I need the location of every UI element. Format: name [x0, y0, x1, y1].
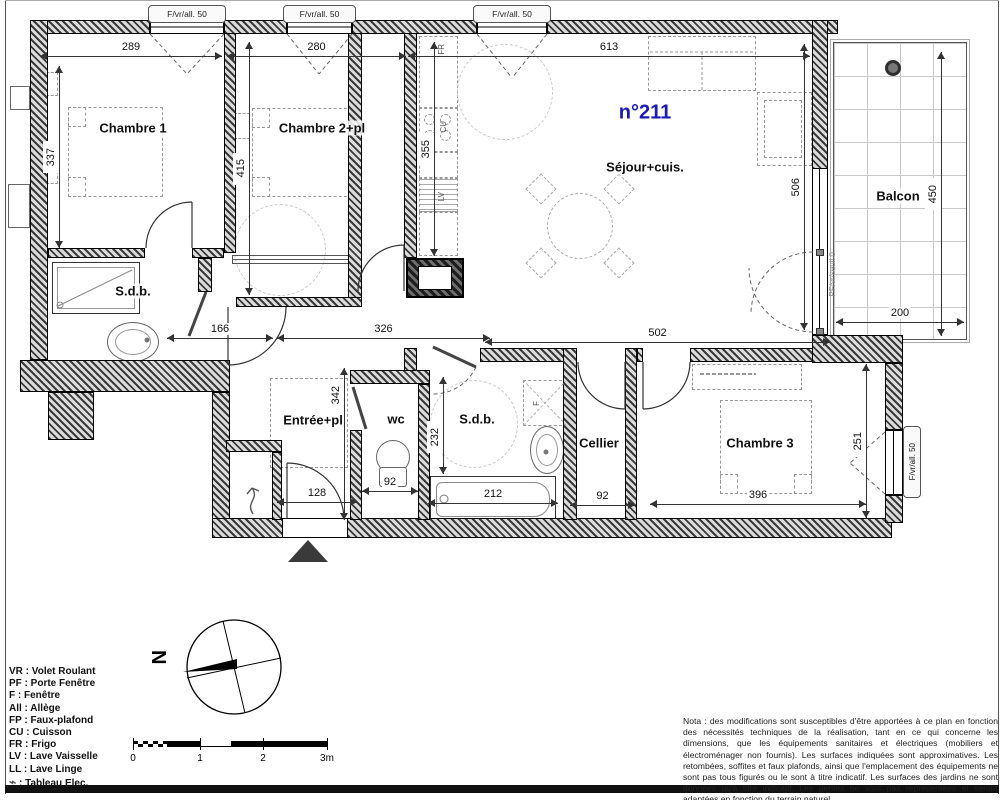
dim-arrow: [399, 52, 406, 60]
dimension-value: 289: [120, 41, 142, 53]
scale-tick: [133, 738, 134, 750]
dimension-line: [836, 322, 964, 323]
legend: VR : Volet RoulantPF : Porte FenêtreF : …: [9, 666, 98, 790]
dim-arrow: [800, 323, 808, 330]
legend-item: FR : Frigo: [9, 739, 98, 751]
scale-tick: [327, 738, 328, 750]
appliance-label-text: LV: [437, 192, 446, 201]
labels-layer: Chambre 1Chambre 2+plSéjour+cuis.BalconS…: [0, 0, 1003, 600]
dimension-line: [408, 56, 810, 57]
window-label-text: F/vr/all. 50: [492, 9, 532, 19]
dim-arrow: [570, 501, 577, 509]
dim-arrow: [937, 329, 945, 336]
dim-arrow: [245, 288, 253, 295]
dimension-line: [428, 503, 558, 504]
dim-arrow: [628, 501, 635, 509]
dimension-value: 506: [790, 178, 802, 196]
room-label-wc: wc: [385, 412, 406, 427]
dim-arrow: [439, 467, 447, 474]
window-label-text: F/vr/all. 50: [167, 9, 207, 19]
room-label-sdb-1: S.d.b.: [113, 284, 152, 299]
legend-item: FP : Faux-plafond: [9, 715, 98, 727]
scale-seg-solid: [231, 741, 263, 747]
dim-arrow: [245, 42, 253, 49]
dim-arrow: [430, 42, 438, 49]
dimension-line: [167, 338, 273, 339]
legend-item: CU : Cuisson: [9, 727, 98, 739]
dim-arrow: [485, 338, 492, 346]
dim-arrow: [227, 52, 234, 60]
dim-arrow: [340, 368, 348, 375]
plan-sheet: n°211 Chambre 1Chambre 2+plSéjour+cuis.B…: [0, 0, 1003, 800]
dim-arrow: [800, 44, 808, 51]
dimension-line: [227, 56, 406, 57]
scale-tick: [263, 738, 264, 750]
appliance-label-lave-vaisselle: LV: [433, 186, 449, 208]
dimension-value: 613: [598, 41, 620, 53]
legend-item: LL : Lave Linge: [9, 764, 98, 776]
dimension-value: 280: [305, 41, 327, 53]
dimension-value-wrap: 232: [427, 421, 443, 453]
dimension-line: [344, 368, 345, 520]
dimension-line: [40, 56, 222, 57]
legend-item: All : Allège: [9, 703, 98, 715]
dimension-line: [59, 66, 60, 248]
dim-arrow: [430, 249, 438, 256]
dimension-value: 502: [646, 327, 668, 339]
dimension-value-wrap: 506: [788, 171, 804, 203]
dimension-value: 450: [927, 185, 939, 203]
legend-item: PF : Porte Fenêtre: [9, 678, 98, 690]
dimension-value: 200: [889, 307, 911, 319]
dimension-line: [443, 377, 444, 474]
legend-item-text: : Tableau Elec.: [16, 778, 88, 789]
dim-arrow: [650, 500, 657, 508]
room-label-sdb-2: S.d.b.: [457, 412, 496, 427]
window-label-chambre3: F/vr/all. 50: [903, 426, 921, 498]
legend-item: VR : Volet Roulant: [9, 666, 98, 678]
dim-arrow: [439, 377, 447, 384]
dimension-value: 92: [382, 476, 398, 488]
dimension-line: [804, 44, 805, 330]
dimension-value: 396: [747, 489, 769, 501]
legend-item: F : Fenêtre: [9, 690, 98, 702]
dimension-line: [277, 338, 490, 339]
dim-arrow: [55, 66, 63, 73]
dimension-line: [941, 52, 942, 336]
scale-seg-checker: [133, 744, 167, 747]
scale-tick-label: 2: [260, 753, 266, 764]
room-label-chambre-3: Chambre 3: [724, 436, 795, 451]
window-label-top-1: F/vr/all. 50: [148, 5, 226, 23]
room-label-sejour-cuisine: Séjour+cuis.: [604, 160, 686, 175]
dimension-value: 251: [852, 432, 864, 450]
dimension-value: 166: [209, 323, 231, 335]
dimension-value: 355: [420, 140, 432, 158]
scale-tick-label: 1: [197, 753, 203, 764]
dim-arrow: [408, 52, 415, 60]
dimension-value-wrap: 251: [850, 425, 866, 457]
dim-arrow: [215, 52, 222, 60]
dim-arrow: [266, 334, 273, 342]
nota-text: Nota : des modifications sont susceptibl…: [683, 716, 998, 800]
dim-arrow: [350, 498, 357, 506]
scale-tick: [200, 738, 201, 750]
window-label-top-2: F/vr/all. 50: [283, 5, 356, 23]
dimension-value-wrap: 337: [43, 141, 59, 173]
appliance-label-cuisson: CU: [435, 116, 451, 138]
dim-arrow: [167, 334, 174, 342]
scale-tick-label: 0: [130, 753, 136, 764]
dim-arrow: [862, 511, 870, 518]
dim-arrow: [937, 52, 945, 59]
scale-bar: 0123m: [130, 730, 340, 770]
dimension-value: 128: [306, 487, 328, 499]
dim-arrow: [40, 52, 47, 60]
dimension-line: [434, 42, 435, 256]
dimension-line: [277, 502, 357, 503]
legend-item: LV : Lave Vaisselle: [9, 751, 98, 763]
dim-arrow: [428, 499, 435, 507]
balcony-door-label-text: PF/vr/seuil 0: [828, 252, 837, 296]
dimension-line: [570, 505, 635, 506]
dimension-value: 415: [235, 159, 247, 177]
scale-tick-label: 3m: [320, 753, 334, 764]
dimension-value-wrap: 342: [328, 379, 344, 411]
appliance-label-text: CU: [439, 121, 448, 133]
dimension-line: [650, 504, 866, 505]
room-label-cellier: Cellier: [577, 436, 621, 451]
dimension-line: [866, 364, 867, 518]
room-label-chambre-2: Chambre 2+pl: [277, 121, 367, 136]
dimension-line: [249, 42, 250, 295]
dimension-value: 326: [372, 323, 394, 335]
dimension-line: [362, 491, 418, 492]
balcony-door-label: PF/vr/seuil 0: [824, 222, 840, 326]
compass-north-label: N: [148, 642, 172, 672]
dimension-value-wrap: 355: [418, 133, 434, 165]
room-label-balcon: Balcon: [874, 189, 921, 204]
dim-arrow: [859, 500, 866, 508]
scale-seg-solid: [167, 741, 200, 747]
dimension-value-wrap: 450: [925, 178, 941, 210]
dim-arrow: [277, 498, 284, 506]
dim-arrow: [55, 241, 63, 248]
legend-item-tableau-elec: ⌁ : Tableau Elec.: [9, 776, 98, 790]
dim-arrow: [362, 487, 369, 495]
dim-arrow: [411, 487, 418, 495]
dimension-value: 232: [429, 428, 441, 446]
window-label-top-3: F/vr/all. 50: [473, 5, 551, 23]
window-label-text: F/vr/all. 50: [300, 9, 340, 19]
window-label-text: F/vr/all. 50: [908, 443, 917, 480]
room-label-entree: Entrée+pl: [281, 413, 345, 428]
dimension-value: 92: [594, 490, 610, 502]
dim-arrow: [823, 338, 830, 346]
dimension-value-wrap: 415: [233, 153, 249, 185]
dim-arrow: [340, 513, 348, 520]
dimension-value: 212: [482, 488, 504, 500]
dimension-value: 342: [330, 386, 342, 404]
dimension-line: [485, 342, 830, 343]
dim-arrow: [836, 318, 843, 326]
dim-arrow: [862, 364, 870, 371]
appliance-label-reserved-spot: F: [528, 392, 544, 414]
dimension-value: 337: [45, 148, 57, 166]
compass-icon: [180, 612, 290, 722]
dim-arrow: [957, 318, 964, 326]
dim-arrow: [551, 499, 558, 507]
appliance-label-text: F: [532, 401, 541, 406]
room-label-chambre-1: Chambre 1: [97, 121, 168, 136]
scale-seg-solid: [263, 741, 327, 747]
dim-arrow: [277, 334, 284, 342]
